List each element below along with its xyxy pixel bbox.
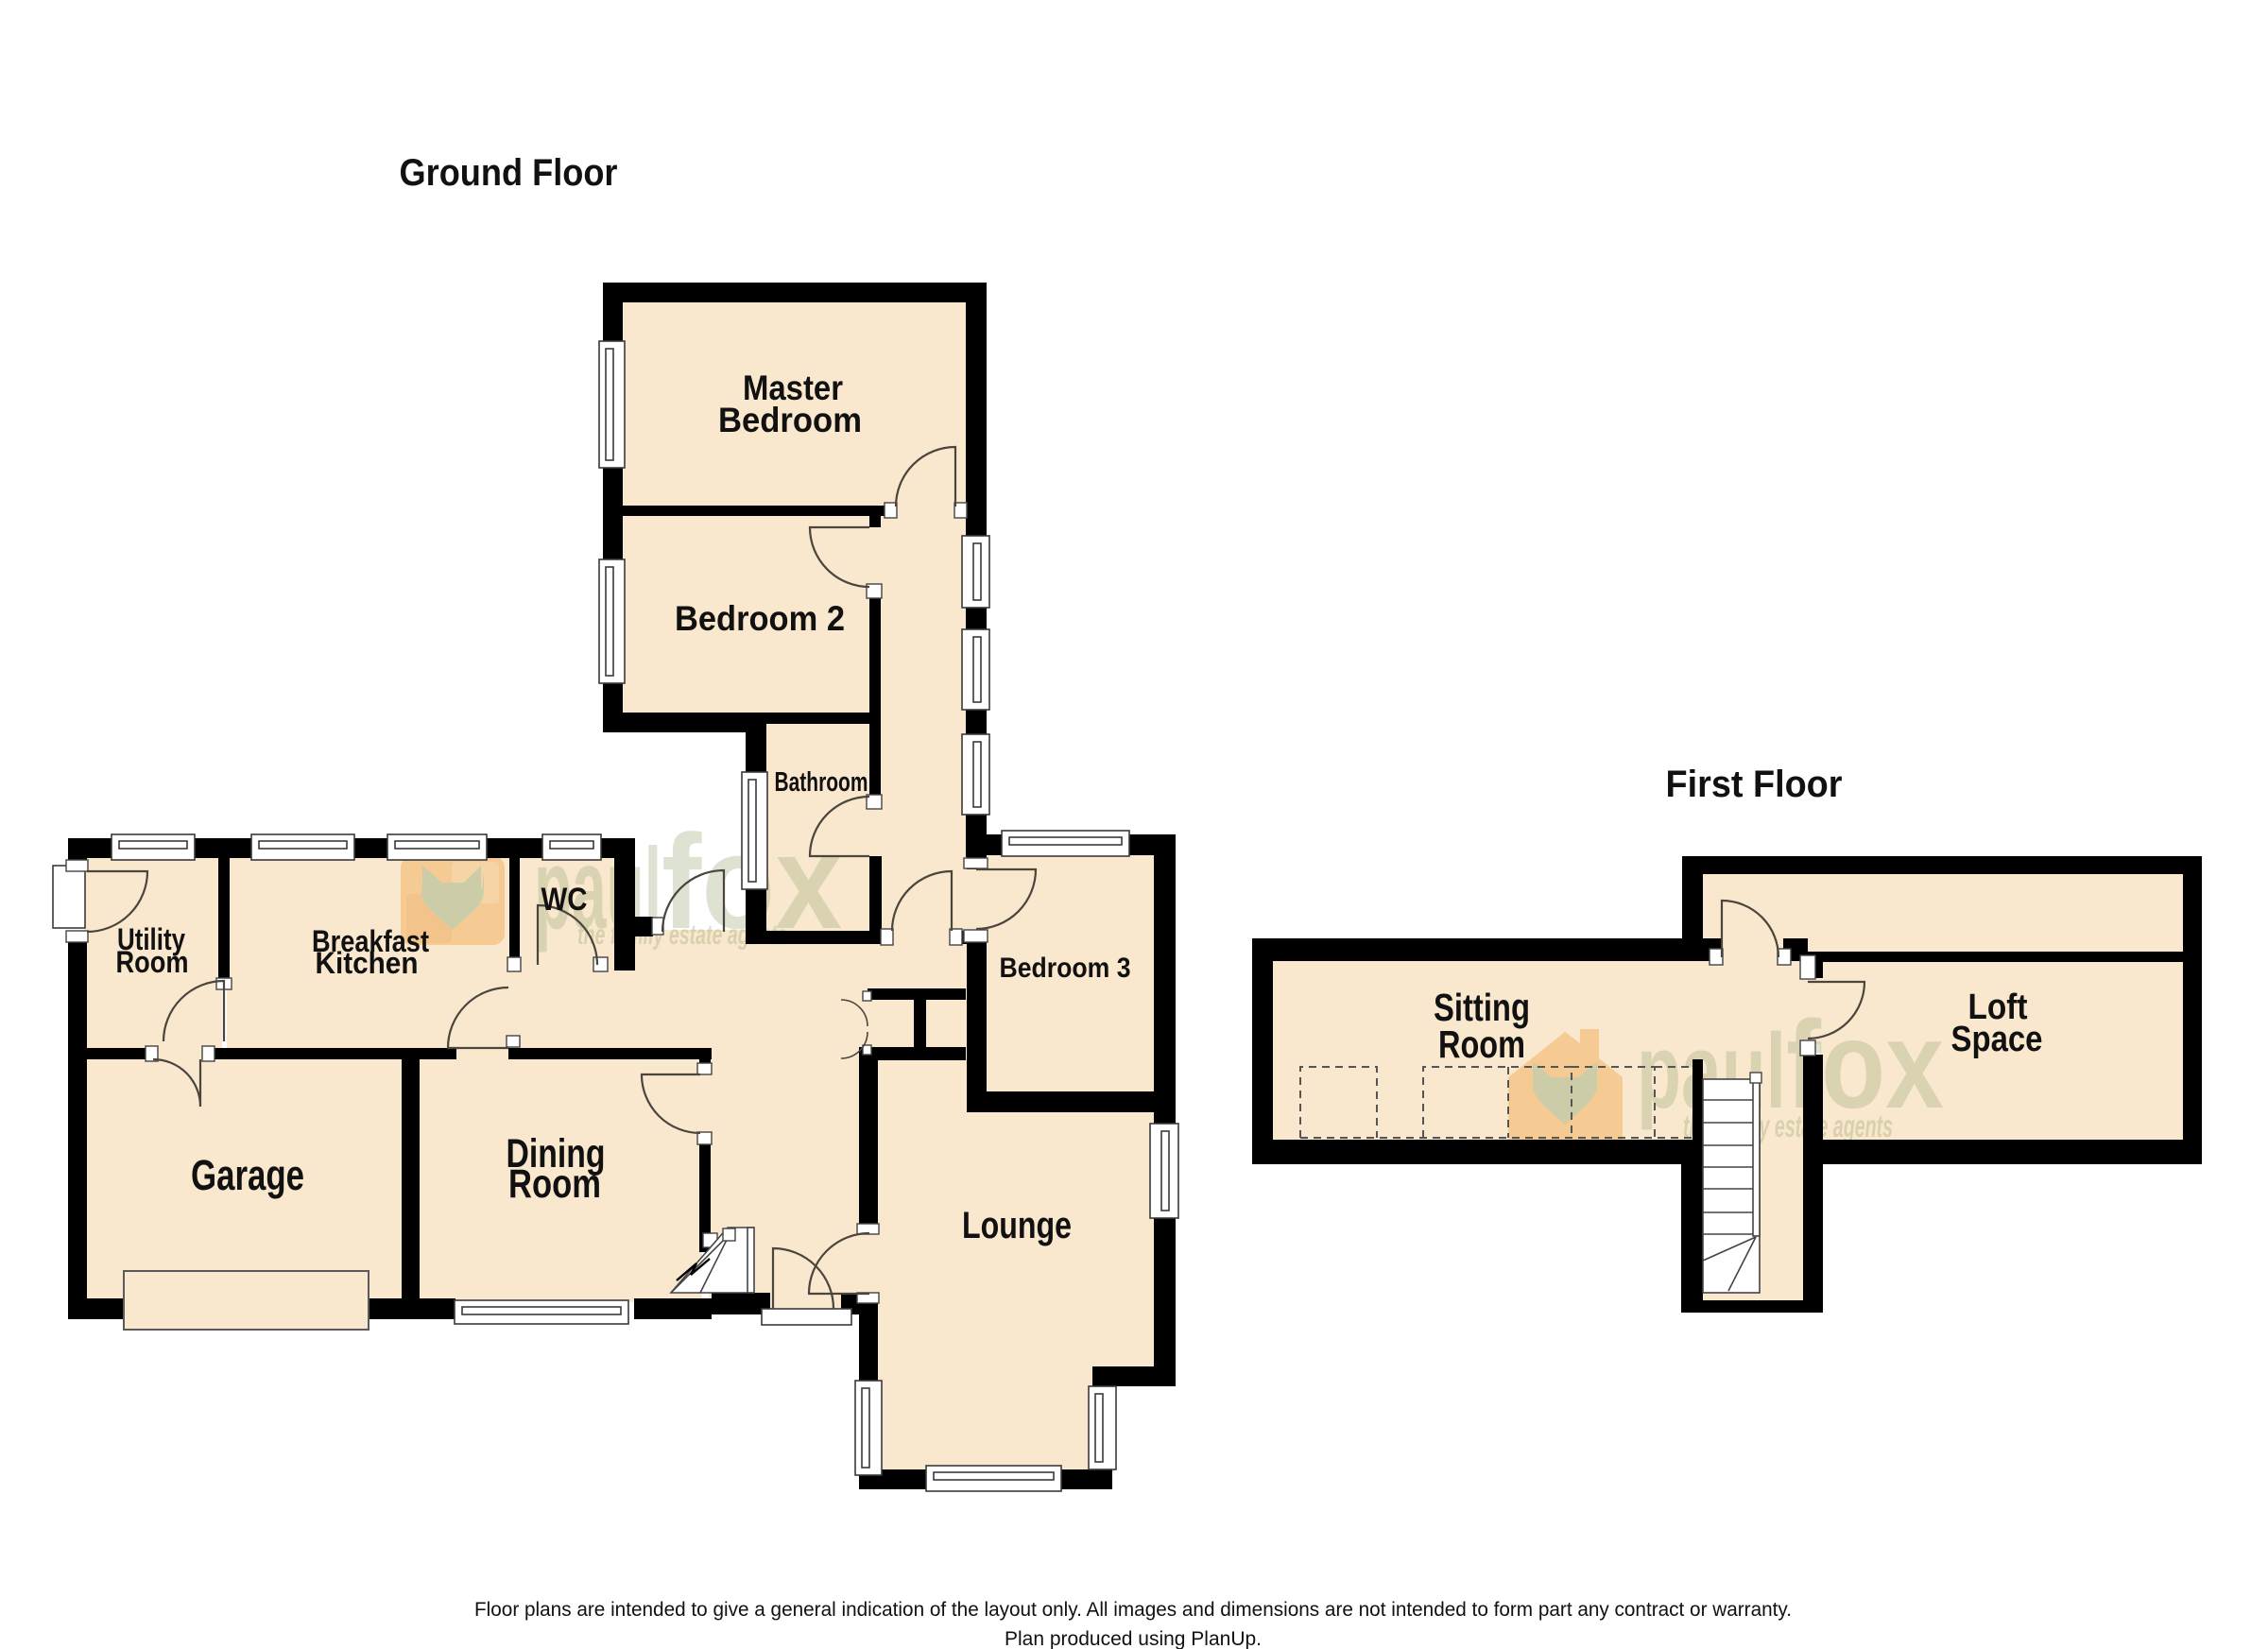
- svg-text:Bedroom 3: Bedroom 3: [1000, 953, 1131, 984]
- svg-text:Bedroom: Bedroom: [718, 401, 862, 439]
- svg-text:Plan produced using PlanUp.: Plan produced using PlanUp.: [1005, 1628, 1262, 1649]
- svg-text:Ground Floor: Ground Floor: [400, 152, 618, 194]
- svg-text:Garage: Garage: [191, 1151, 304, 1199]
- svg-text:Space: Space: [1951, 1020, 2043, 1059]
- svg-text:Kitchen: Kitchen: [316, 946, 419, 980]
- svg-text:WC: WC: [541, 882, 588, 918]
- svg-text:Lounge: Lounge: [962, 1205, 1072, 1246]
- svg-text:First Floor: First Floor: [1666, 764, 1843, 805]
- svg-text:Floor plans are intended to gi: Floor plans are intended to give a gener…: [474, 1599, 1792, 1621]
- svg-text:Room: Room: [508, 1161, 601, 1207]
- svg-text:Room: Room: [1438, 1022, 1525, 1066]
- svg-text:Bedroom 2: Bedroom 2: [675, 599, 845, 638]
- svg-text:Room: Room: [116, 945, 189, 979]
- svg-text:Bathroom: Bathroom: [775, 767, 868, 798]
